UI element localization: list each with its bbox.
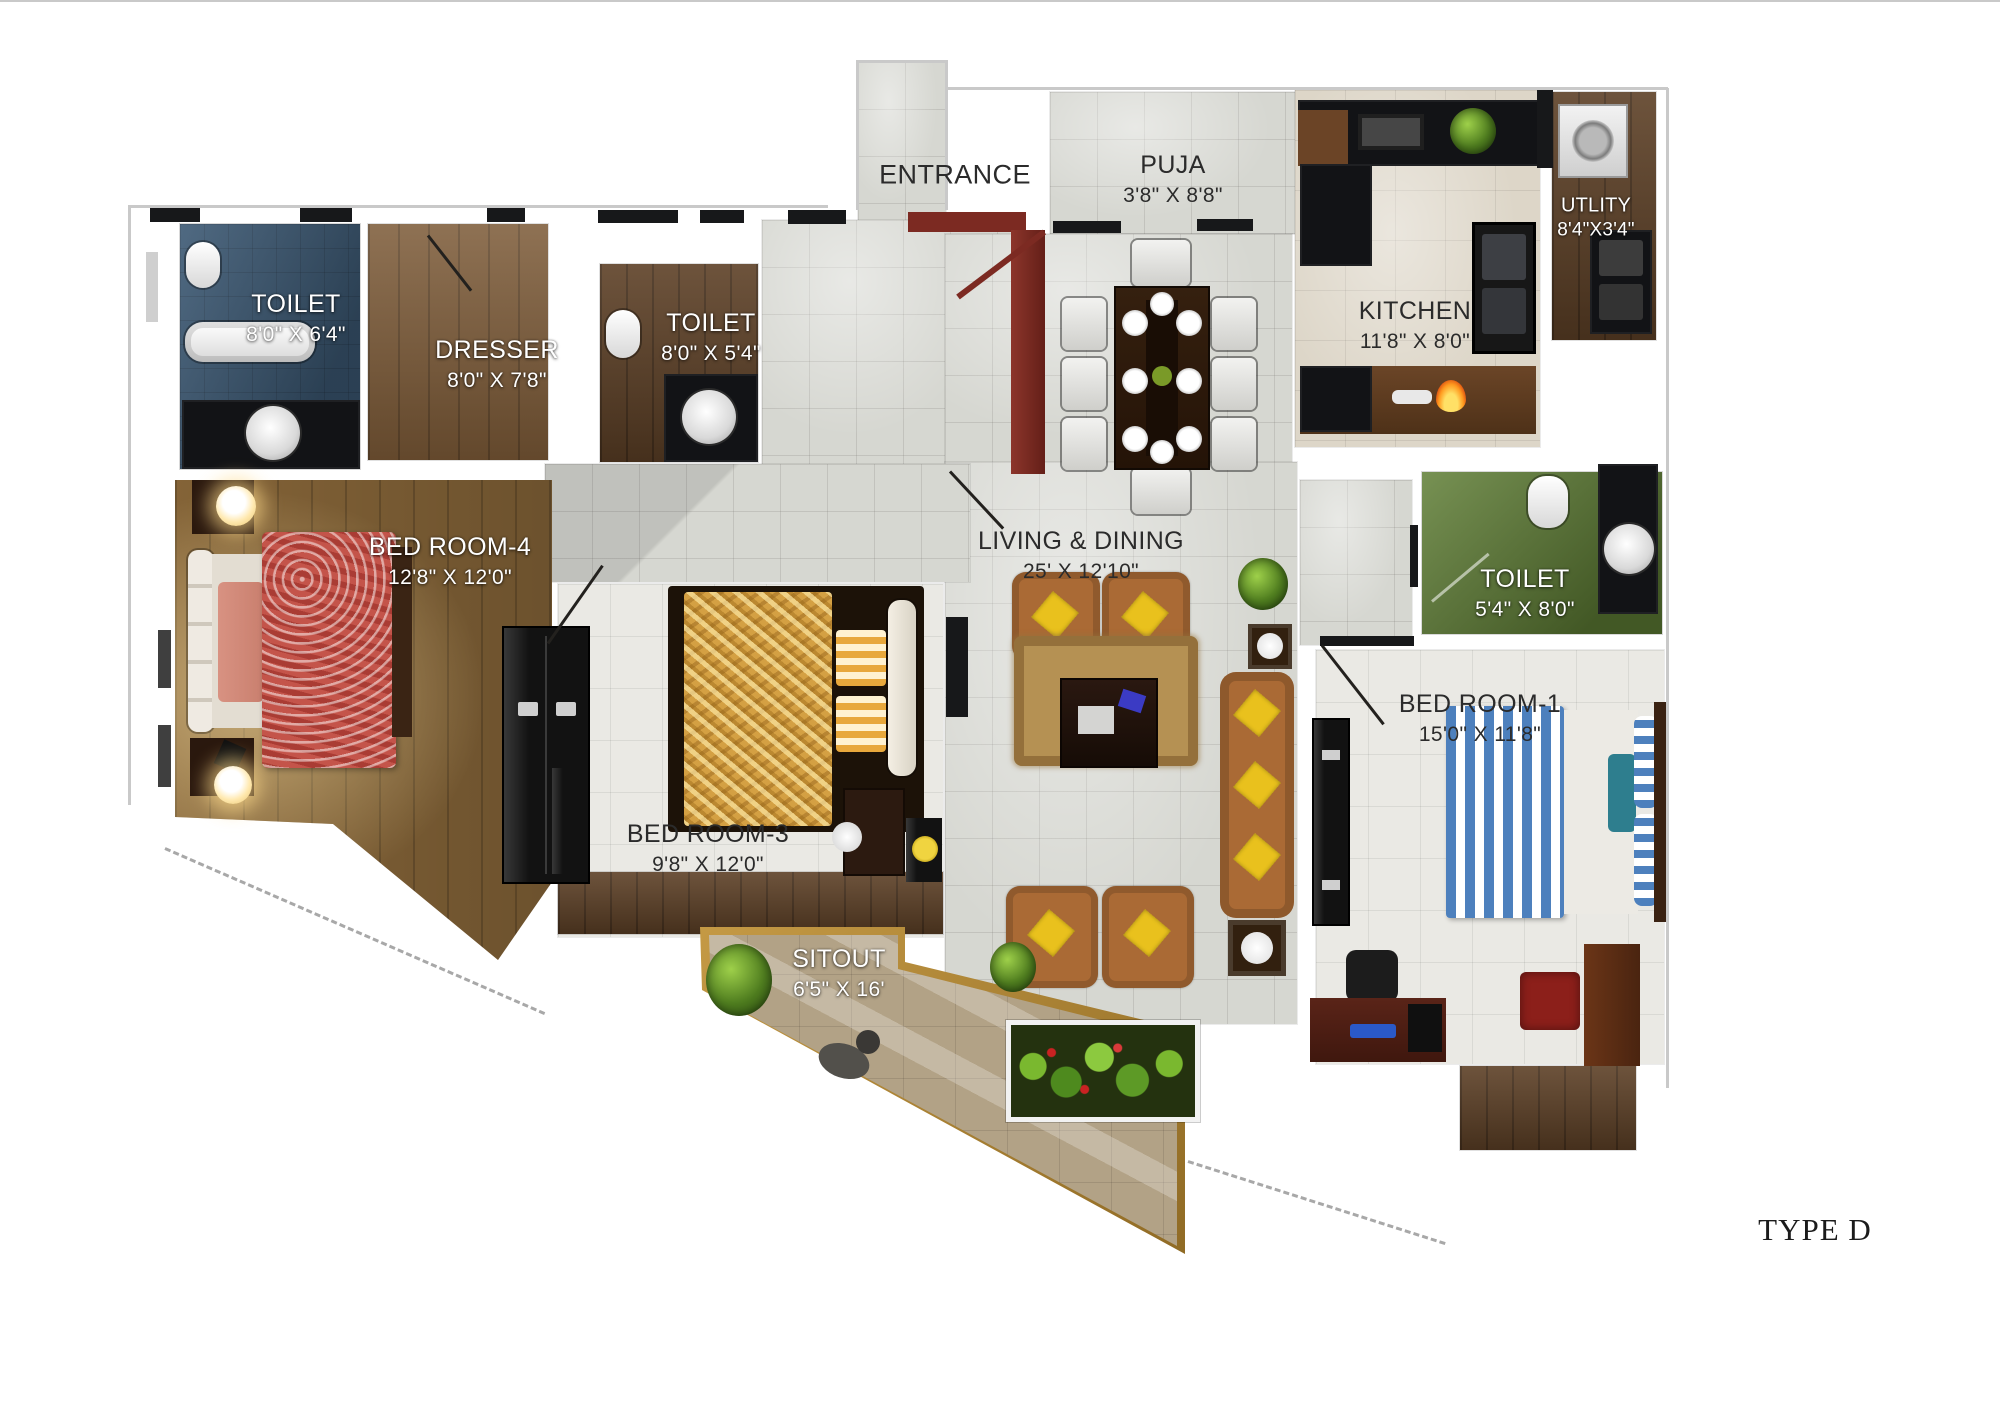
table-lamp <box>1241 932 1273 964</box>
bedroom3-plaid-pillow-2 <box>836 696 886 752</box>
armchair-cushion <box>1121 591 1169 639</box>
dining-table <box>1116 288 1208 468</box>
room-name: LIVING & DINING <box>978 527 1184 555</box>
puja-sill <box>1053 221 1121 233</box>
room-label-dresser: DRESSER 8'0" X 7'8" <box>435 334 559 394</box>
plate <box>1176 368 1202 394</box>
sofa-cushion-1 <box>1233 689 1281 737</box>
side-table-bottom <box>1228 920 1286 976</box>
room-dims: 8'0" X 6'4" <box>246 321 346 348</box>
window-frame-left <box>158 630 171 688</box>
fridge-panel-top <box>1482 234 1526 280</box>
sofa-cushion-3 <box>1233 833 1281 881</box>
room-name: BED ROOM-3 <box>627 820 789 848</box>
toilet3-sink <box>682 390 736 444</box>
outer-wall-edge <box>856 60 948 63</box>
dog-head <box>856 1030 880 1054</box>
outer-wall-edge <box>128 205 131 805</box>
plate <box>1122 310 1148 336</box>
window-lintel <box>150 208 200 222</box>
coffee-table <box>1062 680 1156 766</box>
room-dims: 25' X 12'10" <box>978 558 1184 585</box>
kitchen-bottom-black-unit <box>1300 366 1372 432</box>
kitchen-left-counter <box>1300 164 1372 266</box>
room-dims: 6'5" X 16' <box>792 976 886 1003</box>
plate <box>1122 368 1148 394</box>
room-name: PUJA <box>1140 151 1206 179</box>
room-label-living-dining: LIVING & DINING 25' X 12'10" <box>978 525 1184 585</box>
bedroom1-teal-cushion <box>1608 754 1636 832</box>
plan-type-caption: TYPE D <box>1758 1212 1872 1248</box>
window-lintel <box>300 208 352 222</box>
room-label-entrance: ENTRANCE <box>879 157 1031 192</box>
coffee-table-blue-object <box>1118 689 1146 714</box>
floor-plan: TOILET 8'0" X 6'4" DRESSER 8'0" X 7'8" T… <box>0 2 2000 1416</box>
wardrobe-handle-1 <box>518 702 538 716</box>
bedroom3-plaid-pillow-1 <box>836 630 886 686</box>
utility-appliance-counter <box>1590 230 1652 334</box>
room-name: TOILET <box>1480 565 1569 593</box>
outer-wall-edge <box>856 60 859 210</box>
bedroom3-stool <box>832 822 862 852</box>
floor-plan-page: TOILET 8'0" X 6'4" DRESSER 8'0" X 7'8" T… <box>0 0 2000 1416</box>
dining-chair-left-1 <box>1062 298 1106 350</box>
plate <box>1176 426 1202 452</box>
room-name: BED ROOM-1 <box>1399 690 1561 718</box>
bedroom1-desk <box>1310 998 1446 1062</box>
dining-chair-left-3 <box>1062 418 1106 470</box>
desk-monitor <box>1408 1004 1442 1052</box>
bedroom4-pink-throw <box>218 582 264 702</box>
entrance-door-wall <box>1011 230 1045 474</box>
room-label-utility: UTLITY 8'4"X3'4" <box>1557 193 1635 244</box>
kitchen-top-counter-wood-end <box>1298 110 1348 166</box>
bedroom1-wardrobe <box>1314 720 1348 924</box>
room-name: ENTRANCE <box>879 159 1031 189</box>
washer-door <box>1572 120 1614 162</box>
toilet1-sink <box>1604 524 1654 574</box>
window-lintel <box>788 210 846 224</box>
toilet3-wc <box>606 310 640 358</box>
bedroom4-headboard <box>188 550 214 732</box>
dining-chair-top <box>1132 240 1190 286</box>
kitchen-plant <box>1450 108 1496 154</box>
passage-door-frame <box>1410 525 1418 587</box>
outer-wall-edge <box>128 205 828 208</box>
wardrobe-handle <box>1322 880 1340 890</box>
bedroom1-cabinet <box>1584 944 1640 1066</box>
room-label-kitchen: KITCHEN 11'8" X 8'0" <box>1359 295 1472 355</box>
outer-wall-edge <box>948 87 1668 90</box>
dining-chair-right-3 <box>1212 418 1256 470</box>
dining-chair-bottom <box>1132 468 1190 514</box>
room-label-toilet4: TOILET 8'0" X 6'4" <box>246 288 346 348</box>
kitchen-fridge <box>1472 222 1536 354</box>
bedroom4-lamp-top <box>216 486 256 526</box>
outer-wall-edge <box>1666 88 1669 1088</box>
armchair-cushion <box>1123 909 1171 957</box>
room-label-bedroom3: BED ROOM-3 9'8" X 12'0" <box>627 818 789 878</box>
room-name: UTLITY <box>1561 195 1631 217</box>
wardrobe-divider <box>545 636 547 874</box>
corridor-floor <box>545 464 970 582</box>
table-lamp <box>1257 633 1283 659</box>
room-dims: 9'8" X 12'0" <box>627 851 789 878</box>
kitchen-utility-wall <box>1537 90 1553 168</box>
coffee-table-laptop <box>1078 706 1114 734</box>
room-label-bedroom1: BED ROOM-1 15'0" X 11'8" <box>1399 688 1561 748</box>
window-lintel <box>700 210 744 223</box>
room-name: SITOUT <box>792 945 886 973</box>
room-name: TOILET <box>666 309 755 337</box>
bedroom1-desk-chair <box>1346 950 1398 1002</box>
dining-chair-right-1 <box>1212 298 1256 350</box>
bedroom1-door-lintel <box>1320 636 1414 646</box>
kitchen-sink <box>1358 114 1424 150</box>
window-frame-left <box>158 725 171 787</box>
room-label-toilet3: TOILET 8'0" X 5'4" <box>661 307 761 367</box>
window-frame-left <box>146 252 158 322</box>
sitout-plant <box>706 944 772 1016</box>
toilet1-wc <box>1528 476 1568 528</box>
dining-chair-right-2 <box>1212 358 1256 410</box>
puja-sill <box>1197 219 1253 231</box>
room-dims: 8'0" X 5'4" <box>661 340 761 367</box>
bedroom4-lamp-bottom <box>214 766 252 804</box>
dining-chair-left-2 <box>1062 358 1106 410</box>
utility-washer <box>1560 106 1626 176</box>
planter-box <box>1006 1020 1200 1122</box>
room-dims: 12'8" X 12'0" <box>369 564 531 591</box>
room-dims: 3'8" X 8'8" <box>1123 182 1223 209</box>
bedroom3-wood-strip <box>558 872 943 934</box>
bedroom3-black-unit <box>552 768 588 874</box>
room-label-sitout: SITOUT 6'5" X 16' <box>792 943 886 1003</box>
room-dims: 8'0" X 7'8" <box>435 367 559 394</box>
desk-laptop <box>1350 1024 1396 1038</box>
plate <box>1122 426 1148 452</box>
room-name: TOILET <box>251 290 340 318</box>
room-dims: 8'4"X3'4" <box>1557 219 1635 244</box>
entrance-floor <box>858 62 946 220</box>
window-lintel <box>598 210 678 223</box>
bedroom3-yellow-disc <box>912 836 938 862</box>
centerpiece-bowl <box>1152 366 1172 386</box>
armchair-cushion <box>1031 591 1079 639</box>
wardrobe-handle-2 <box>556 702 576 716</box>
living-plant-top <box>1238 558 1288 610</box>
side-table-top <box>1248 624 1292 669</box>
bedroom3-bed-blanket <box>684 592 832 826</box>
room-label-toilet1: TOILET 5'4" X 8'0" <box>1475 563 1575 623</box>
fridge-panel-bottom <box>1482 288 1526 334</box>
bedroom1-ottoman <box>1520 972 1580 1030</box>
entrance-door-header <box>908 212 1026 232</box>
armchair-bottom-2 <box>1102 886 1194 988</box>
boundary-dash-right <box>1188 1160 1446 1245</box>
living-plant-bottom <box>990 942 1036 992</box>
plate <box>1176 310 1202 336</box>
kitchen-dish <box>1392 390 1432 404</box>
room-dims: 15'0" X 11'8" <box>1399 721 1561 748</box>
wardrobe-handle <box>1322 750 1340 760</box>
door-frame <box>946 617 968 717</box>
room-label-bedroom4: BED ROOM-4 12'8" X 12'0" <box>369 531 531 591</box>
sofa-cushion-2 <box>1233 761 1281 809</box>
window-lintel <box>487 208 525 222</box>
plate <box>1150 292 1174 316</box>
armchair-cushion <box>1027 909 1075 957</box>
utility-appliance-bottom <box>1599 284 1643 320</box>
cooktop-flame-icon <box>1436 380 1466 412</box>
room-label-puja: PUJA 3'8" X 8'8" <box>1123 149 1223 209</box>
plate <box>1150 440 1174 464</box>
toilet4-sink <box>246 406 300 460</box>
passage-bedroom1-floor <box>1300 480 1412 645</box>
room-name: KITCHEN <box>1359 297 1472 325</box>
bedroom3-bolster <box>888 600 916 776</box>
sofa <box>1220 672 1294 918</box>
utility-appliance-top <box>1599 240 1643 276</box>
room-dims: 11'8" X 8'0" <box>1359 328 1472 355</box>
room-dims: 5'4" X 8'0" <box>1475 596 1575 623</box>
room-name: BED ROOM-4 <box>369 533 531 561</box>
bedroom1-ledge-floor <box>1460 1066 1636 1150</box>
toilet4-wc <box>186 242 220 288</box>
room-name: DRESSER <box>435 336 559 364</box>
